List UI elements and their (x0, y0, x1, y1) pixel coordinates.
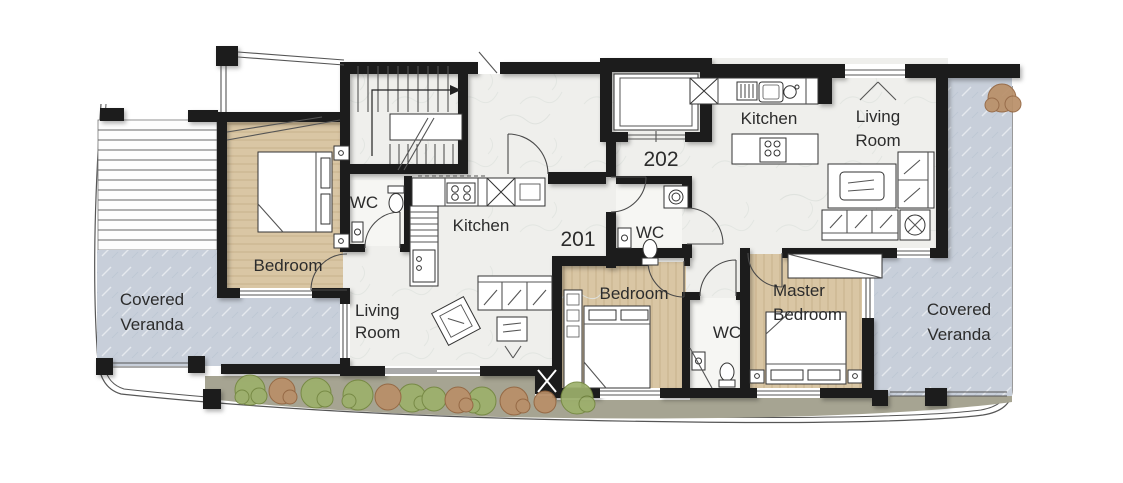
sofa (478, 276, 552, 310)
label-unit-201: 201 (560, 228, 595, 251)
label-bedroom-201: Bedroom (254, 256, 323, 275)
nightstand (750, 370, 764, 383)
label-wc-201: WC (350, 193, 378, 212)
washing-machine-icon (664, 186, 688, 208)
label-wc-202-inner: WC (713, 323, 741, 342)
label-bedroom-202: Bedroom (600, 284, 669, 303)
coffee-table (497, 317, 527, 341)
toilet-icon (643, 240, 657, 259)
label-kitchen-202: Kitchen (741, 109, 798, 128)
living-202-furniture (822, 152, 934, 240)
nightstand (334, 234, 349, 248)
floor-plan-page: Bedroom WC Kitchen LivingRoom CoveredVer… (0, 0, 1123, 483)
wc-202-inner-floor (690, 298, 742, 390)
toilet-icon (388, 186, 404, 193)
label-kitchen-201: Kitchen (453, 216, 510, 235)
elevator (614, 74, 698, 130)
stove-icon (447, 183, 475, 203)
exterior-stair (98, 120, 217, 250)
nightstand (848, 370, 862, 383)
label-unit-202: 202 (643, 148, 678, 171)
washbasin-icon (352, 222, 363, 242)
toilet-icon (720, 363, 734, 381)
stair-landing (390, 114, 462, 140)
nightstand (334, 146, 349, 160)
coffee-table (828, 164, 896, 208)
floor-plan-drawing: Bedroom WC Kitchen LivingRoom CoveredVer… (0, 0, 1123, 483)
washbasin-icon (618, 228, 631, 248)
label-wc-202-entry: WC (636, 223, 664, 242)
